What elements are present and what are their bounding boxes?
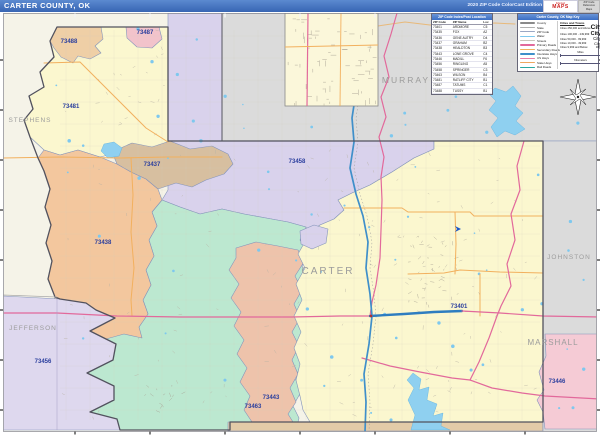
legend-line-items: CountyStateZIP CodeWaterStreetsPrimary R… — [520, 21, 557, 69]
legend-line-sample — [520, 40, 535, 41]
pond — [192, 119, 195, 122]
zip-table-row: 73458SPRINGERC3 — [432, 67, 492, 72]
grid-tick — [0, 209, 3, 211]
pond — [370, 412, 372, 414]
pond — [172, 270, 175, 273]
legend-scale-bar: Miles — [560, 51, 600, 57]
county-label: JEFFERSON — [9, 325, 57, 332]
pond — [455, 95, 458, 98]
legend-line-sample — [520, 49, 535, 51]
county-label: MURRAY — [382, 75, 430, 85]
zip-table-cell: 73488 — [432, 88, 452, 93]
legend-scale-bar: Kilometers — [560, 59, 600, 65]
legend-city-label: Cities 250,000 and Above — [560, 27, 591, 30]
pond — [268, 188, 270, 190]
grid-tick — [0, 309, 3, 311]
zip-code-label: 73401 — [451, 304, 468, 310]
map-legend: Carter County, OK Map Key CountyStateZIP… — [517, 13, 599, 72]
zip-code-label: 73488 — [61, 39, 78, 45]
grid-tick — [299, 14, 301, 18]
pond — [474, 232, 476, 234]
zip-code-label: 73463 — [245, 404, 262, 410]
zip-table-row: 73446MADILLF6 — [432, 56, 492, 61]
county-label: JOHNSTON — [547, 254, 591, 261]
highway-junction-marker — [370, 315, 373, 318]
pond — [582, 367, 585, 370]
pond — [323, 385, 325, 387]
pond — [414, 166, 416, 168]
grid-tick — [0, 109, 3, 111]
pond — [566, 348, 568, 350]
zip-table-row: 73443LONE GROVEC4 — [432, 51, 492, 56]
pond — [537, 174, 540, 177]
pond — [403, 112, 406, 115]
pond — [223, 95, 226, 98]
legend-line-label: US Hwys — [537, 56, 549, 60]
map-document: { "header": { "title": "CARTER COUNTY, O… — [0, 0, 600, 435]
pond — [576, 122, 579, 125]
legend-line-sample — [520, 31, 535, 32]
pond — [485, 131, 488, 134]
pond — [98, 235, 101, 238]
pond — [310, 126, 313, 129]
pond — [572, 406, 575, 409]
grid-tick — [0, 259, 3, 261]
pond — [242, 104, 244, 106]
pond — [295, 259, 297, 261]
pond — [451, 344, 455, 348]
love-strip — [228, 422, 543, 431]
grid-tick — [74, 432, 76, 435]
zip-table-row: 73437GRAHAMB2 — [432, 40, 492, 45]
grid-tick — [299, 432, 301, 435]
pond — [330, 355, 334, 359]
pond — [82, 144, 85, 147]
pond — [437, 321, 440, 324]
publisher-logo: Market MAPS — [543, 0, 578, 13]
legend-line-sample — [520, 36, 535, 38]
title-bar: CARTER COUNTY, OK 2020 ZIP Code ColorCas… — [0, 0, 600, 13]
county-map: STEPHENSJEFFERSONMURRAYCARTERJOHNSTONMAR… — [0, 0, 600, 435]
legend-line-sample — [520, 67, 535, 68]
pond — [223, 379, 226, 382]
legend-line-label: Rail Roads — [537, 65, 551, 69]
pond — [395, 337, 398, 340]
legend-line-sample — [520, 58, 535, 60]
legend-city-item: Cities 9,999 and Belowcity — [560, 46, 600, 49]
page-title: CARTER COUNTY, OK — [4, 1, 90, 10]
pond — [390, 418, 393, 421]
legend-line-sample — [520, 62, 535, 63]
pond — [482, 363, 485, 366]
county-label: CARTER — [302, 266, 355, 277]
zip-table-header-row: ZIP CodeZIP NameLoc — [432, 20, 492, 25]
zip-code-label: 73443 — [263, 395, 280, 401]
zip-code-label: 73456 — [35, 359, 52, 365]
zip-code-label: 73446 — [549, 379, 566, 385]
pond — [165, 332, 167, 334]
zip-code-label: 73481 — [63, 104, 80, 110]
grid-tick — [149, 432, 151, 435]
pond — [407, 216, 409, 218]
pond — [196, 38, 198, 40]
pond — [150, 60, 153, 63]
legend-line-label: ZIP Code — [537, 30, 549, 34]
pond — [394, 259, 396, 261]
map-margin — [0, 13, 4, 435]
zip-table-cell: TUSSY — [452, 88, 483, 93]
legend-line-item: Rail Roads — [520, 65, 557, 69]
legend-line-label: Interstate Hwys — [537, 52, 557, 56]
inset-city-map — [285, 13, 378, 106]
legend-line-label: State Hwys — [537, 61, 552, 65]
zip-table-row: 73488TUSSYB1 — [432, 88, 492, 93]
zip-table-row: 73481RATLIFF CITYB1 — [432, 78, 492, 83]
legend-line-sample — [520, 27, 535, 29]
pond — [67, 171, 69, 173]
edition-label: 2020 ZIP Code ColorCast Edition — [467, 3, 542, 8]
grid-tick — [524, 432, 526, 435]
map-margin — [597, 13, 600, 435]
zip-table-row: 73463WILSONB4 — [432, 72, 492, 77]
grid-tick — [449, 432, 451, 435]
logo-side-box: ZIP Code Reference Maps — [578, 0, 600, 13]
zip-table-row: 73456RINGLINGA5 — [432, 62, 492, 67]
zip-table-row: 73401ARDMOREC5 — [432, 25, 492, 30]
county-label: MARSHALL — [527, 338, 578, 347]
grid-tick — [149, 14, 151, 18]
legend-city-sample: city — [596, 46, 600, 49]
grid-tick — [374, 14, 376, 18]
pond — [67, 139, 71, 143]
zip-table-cell: B1 — [482, 88, 492, 93]
legend-cities: Cities and Towns Cities 250,000 and Abov… — [557, 21, 600, 69]
pond — [404, 124, 406, 126]
legend-line-label: Water — [537, 34, 545, 38]
legend-line-sample — [520, 44, 535, 46]
grid-tick — [374, 432, 376, 435]
pond — [243, 127, 245, 129]
legend-line-sample — [520, 22, 535, 24]
legend-line-label: State — [537, 26, 544, 30]
county-label: STEPHENS — [8, 117, 51, 124]
logo-box-line: Maps — [579, 9, 599, 12]
zip-code-label: 73437 — [144, 162, 161, 168]
zip-index-table: ZIP Code Index/Post Location ZIP CodeZIP… — [431, 13, 493, 95]
pond — [156, 115, 159, 118]
pond — [257, 248, 260, 251]
pond — [55, 84, 57, 86]
pond — [446, 109, 449, 112]
pond — [521, 308, 524, 311]
grid-tick — [0, 409, 3, 411]
grid-tick — [74, 14, 76, 18]
zip-code-label: 73458 — [289, 159, 306, 165]
grid-tick — [224, 14, 226, 18]
pond — [558, 407, 560, 409]
zip-code-label: 73487 — [137, 30, 154, 36]
pond — [569, 220, 572, 223]
pond — [306, 307, 309, 310]
zip-table-row: 73436GENE AUTRYD4 — [432, 35, 492, 40]
zip-table-row: 73438HEALDTONB3 — [432, 46, 492, 51]
pond — [567, 249, 570, 252]
grid-tick — [0, 59, 3, 61]
pond — [137, 176, 141, 180]
pond — [343, 205, 345, 207]
legend-city-label: Cities 50,000 - 99,999 — [560, 38, 586, 41]
logo-brand-bottom: MAPS — [544, 5, 577, 10]
zip-73446 — [537, 334, 597, 429]
pond — [267, 171, 270, 174]
pond — [582, 279, 584, 281]
legend-line-label: Primary Roads — [537, 43, 556, 47]
compass-center — [577, 96, 579, 98]
legend-line-sample — [520, 53, 535, 55]
pond — [390, 134, 393, 137]
legend-city-label: Cities 9,999 and Below — [560, 46, 588, 49]
pond — [82, 337, 84, 339]
zip-table-row: 73487TATUMSC1 — [432, 83, 492, 88]
zip-code-label: 73438 — [95, 240, 112, 246]
grid-tick — [224, 432, 226, 435]
legend-line-label: County — [537, 21, 546, 25]
pond — [310, 213, 312, 215]
grid-tick — [0, 159, 3, 161]
legend-city-label: Cities 10,000 - 49,999 — [560, 42, 586, 45]
pond — [360, 379, 363, 382]
pond — [176, 73, 179, 76]
grid-tick — [0, 359, 3, 361]
legend-city-label: Cities 100,000 - 249,999 — [560, 33, 589, 36]
pond — [470, 369, 473, 372]
legend-line-label: Streets — [537, 39, 546, 43]
